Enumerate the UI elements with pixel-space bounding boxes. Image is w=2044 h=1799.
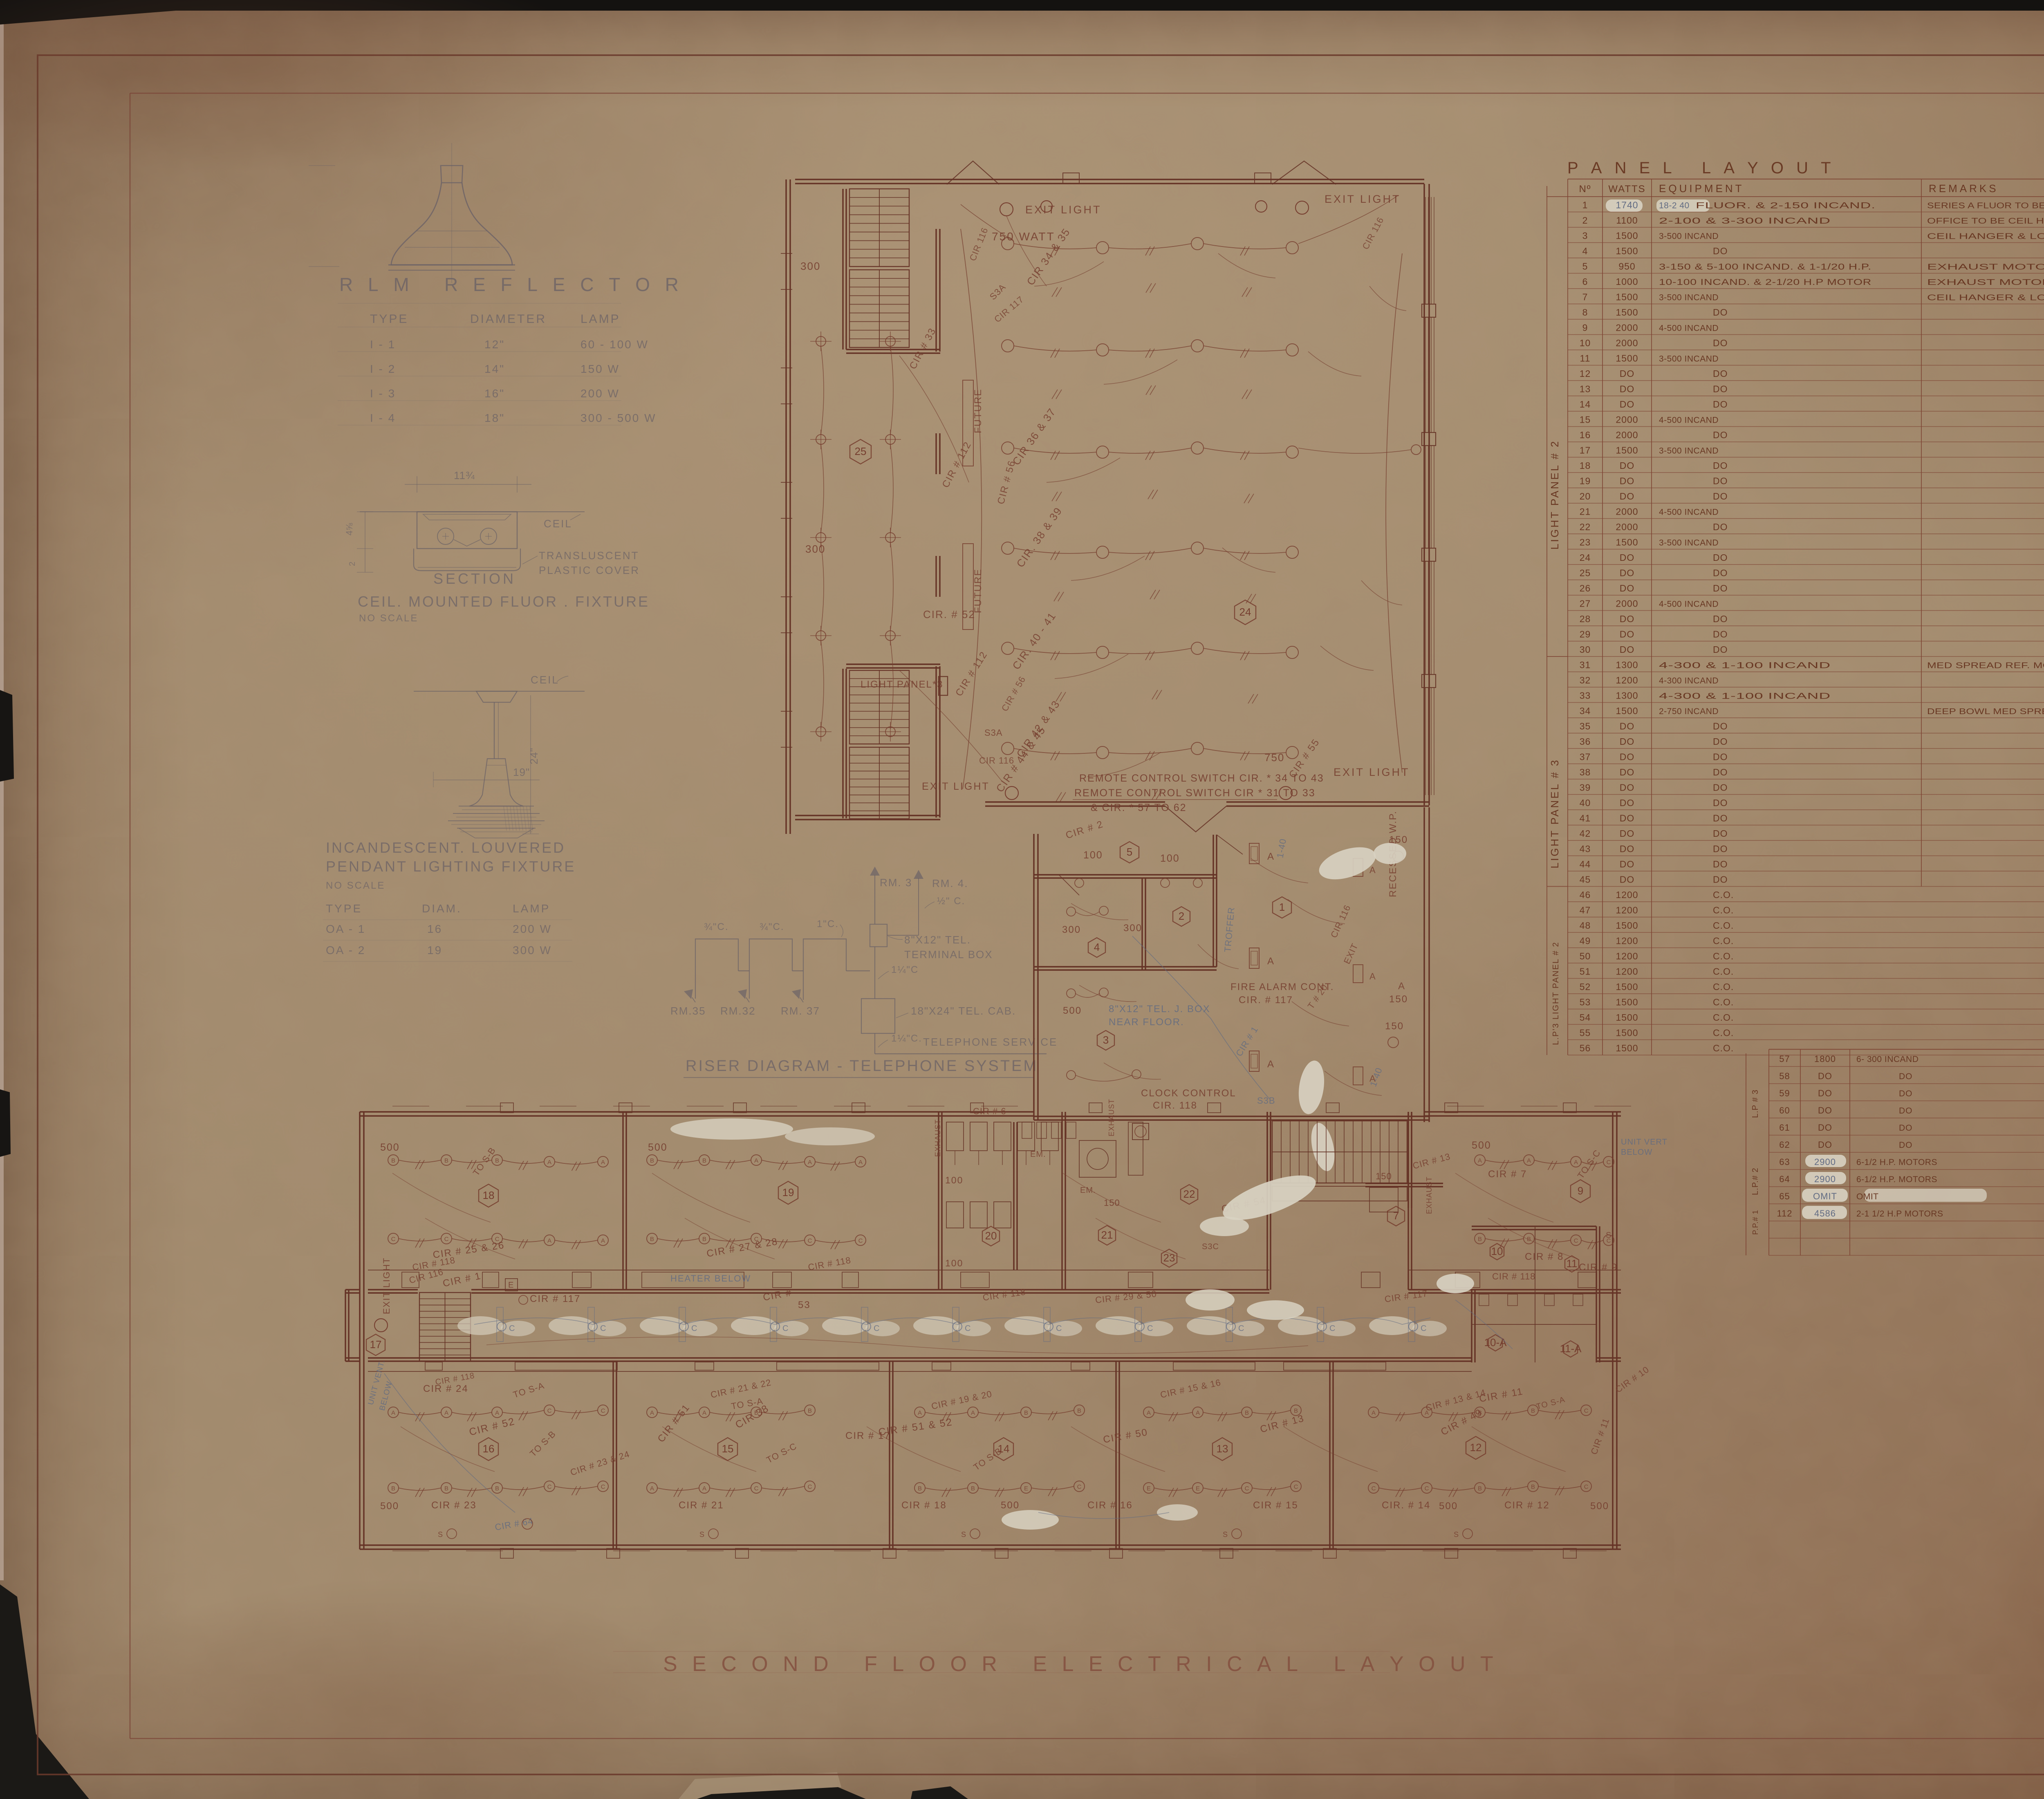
svg-text:A: A (601, 1159, 605, 1166)
svg-text:RM.32: RM.32 (720, 1005, 756, 1017)
svg-text:C.O.: C.O. (1713, 981, 1734, 992)
svg-text:2000: 2000 (1616, 598, 1638, 609)
svg-text:19: 19 (782, 1186, 794, 1199)
svg-text:DO: DO (1713, 828, 1728, 839)
svg-text:NEAR FLOOR.: NEAR FLOOR. (1109, 1017, 1184, 1028)
svg-text:150: 150 (1104, 1198, 1120, 1208)
svg-text:I - 2: I - 2 (370, 363, 396, 375)
svg-text:FUTURE: FUTURE (973, 569, 984, 613)
svg-text:63: 63 (1779, 1157, 1790, 1167)
svg-text:18"X24" TEL. CAB.: 18"X24" TEL. CAB. (911, 1005, 1016, 1017)
svg-text:C: C (965, 1324, 970, 1333)
svg-text:8"X12" TEL.: 8"X12" TEL. (904, 934, 971, 946)
svg-text:REMOTE CONTROL SWITCH CIR * 31: REMOTE CONTROL SWITCH CIR * 31 TO 33 (1074, 787, 1316, 799)
svg-text:P.P.# 1: P.P.# 1 (1751, 1210, 1759, 1234)
svg-text:60: 60 (1779, 1105, 1790, 1116)
svg-text:2: 2 (1179, 910, 1184, 922)
svg-text:22: 22 (1183, 1188, 1195, 1200)
svg-text:1300: 1300 (1616, 690, 1638, 701)
svg-text:59: 59 (1779, 1088, 1790, 1098)
svg-text:200 W: 200 W (580, 387, 620, 400)
svg-text:C: C (1077, 1483, 1082, 1490)
svg-text:150: 150 (1389, 994, 1408, 1005)
svg-text:S: S (1223, 1530, 1228, 1539)
svg-text:CIR 116: CIR 116 (979, 755, 1014, 766)
svg-text:C: C (1421, 1324, 1426, 1333)
svg-text:1500: 1500 (1616, 1043, 1638, 1053)
svg-text:CEIL: CEIL (544, 518, 572, 530)
svg-text:A: A (391, 1409, 395, 1416)
svg-text:½" C.: ½" C. (937, 896, 965, 907)
svg-text:45: 45 (1580, 874, 1591, 885)
svg-text:S: S (438, 1530, 443, 1539)
svg-text:A: A (1369, 865, 1376, 875)
svg-text:13: 13 (1217, 1443, 1228, 1455)
svg-text:DO: DO (1713, 368, 1728, 379)
svg-text:3-500 INCAND: 3-500 INCAND (1659, 446, 1719, 456)
svg-text:C: C (808, 1237, 812, 1244)
svg-text:1"C.: 1"C. (817, 919, 839, 930)
svg-text:4: 4 (1094, 941, 1100, 953)
svg-text:B: B (1077, 1407, 1081, 1414)
svg-text:BELOW: BELOW (1621, 1148, 1652, 1157)
svg-text:DO: DO (1620, 491, 1635, 502)
svg-text:3: 3 (1582, 231, 1588, 241)
svg-text:DO: DO (1620, 798, 1635, 808)
svg-text:500: 500 (1439, 1501, 1458, 1512)
svg-text:DO: DO (1713, 338, 1728, 348)
svg-text:A: A (650, 1409, 654, 1416)
svg-text:DO: DO (1620, 859, 1635, 869)
svg-text:C: C (1245, 1485, 1249, 1492)
svg-text:A: A (1398, 981, 1405, 992)
svg-text:17: 17 (1580, 445, 1591, 456)
svg-text:62: 62 (1779, 1140, 1790, 1150)
svg-text:P A N E L L A Y O U T: P A N E L L A Y O U T (1567, 159, 1835, 177)
svg-text:31: 31 (1580, 660, 1591, 670)
svg-text:OA - 1: OA - 1 (326, 923, 365, 935)
svg-text:C: C (858, 1237, 863, 1244)
svg-text:I - 4: I - 4 (370, 412, 396, 424)
svg-text:C.O.: C.O. (1713, 1043, 1734, 1053)
svg-text:PENDANT LIGHTING FIXTURE: PENDANT LIGHTING FIXTURE (326, 858, 576, 875)
svg-text:DO: DO (1713, 629, 1728, 640)
svg-text:DO: DO (1713, 874, 1728, 885)
svg-text:DO: DO (1713, 752, 1728, 762)
svg-text:21: 21 (1580, 506, 1591, 517)
svg-text:1500: 1500 (1616, 292, 1638, 302)
svg-text:14": 14" (484, 363, 505, 375)
svg-text:A: A (858, 1159, 863, 1166)
svg-text:1200: 1200 (1616, 936, 1638, 946)
svg-text:OMIT: OMIT (1856, 1192, 1879, 1201)
svg-text:1500: 1500 (1616, 231, 1638, 241)
svg-text:CEIL HANGER & LOUVER GRILL: CEIL HANGER & LOUVER GRILL (1927, 232, 2044, 241)
svg-text:57: 57 (1779, 1054, 1790, 1064)
svg-text:1200: 1200 (1616, 675, 1638, 686)
svg-text:S3C: S3C (1202, 1242, 1219, 1251)
svg-text:A: A (1147, 1409, 1151, 1416)
svg-text:C: C (874, 1324, 879, 1333)
svg-text:16": 16" (484, 387, 505, 400)
svg-text:C: C (601, 1407, 605, 1414)
svg-text:8: 8 (1582, 307, 1588, 318)
svg-text:18": 18" (484, 412, 505, 424)
svg-text:DO: DO (1620, 629, 1635, 640)
svg-text:12: 12 (1470, 1441, 1482, 1454)
svg-text:EM.: EM. (1080, 1186, 1096, 1195)
svg-text:6: 6 (1582, 276, 1588, 287)
svg-text:65: 65 (1779, 1191, 1790, 1201)
svg-text:A: A (1196, 1409, 1200, 1416)
svg-text:7: 7 (1582, 292, 1588, 302)
svg-text:CIR # 16: CIR # 16 (1087, 1500, 1133, 1511)
svg-text:41: 41 (1580, 813, 1591, 824)
svg-text:24: 24 (1580, 552, 1591, 563)
svg-text:B: B (495, 1485, 499, 1492)
svg-text:A: A (650, 1485, 654, 1492)
svg-text:DO: DO (1620, 752, 1635, 762)
svg-text:DO: DO (1899, 1106, 1913, 1116)
svg-text:6- 300 INCAND: 6- 300 INCAND (1856, 1055, 1918, 1064)
svg-text:44: 44 (1580, 859, 1591, 869)
svg-text:C: C (1294, 1483, 1298, 1490)
svg-text:3: 3 (1103, 1034, 1109, 1046)
svg-text:26: 26 (1580, 583, 1591, 594)
svg-text:4-500 INCAND: 4-500 INCAND (1659, 416, 1719, 425)
svg-text:2000: 2000 (1616, 323, 1638, 333)
svg-text:L.P # 3: L.P # 3 (1751, 1089, 1760, 1118)
svg-text:12": 12" (484, 338, 505, 351)
svg-text:CIR. 118: CIR. 118 (1153, 1100, 1197, 1111)
svg-text:DO: DO (1713, 460, 1728, 471)
svg-text:300 - 500 W: 300 - 500 W (580, 412, 657, 424)
svg-text:3-150 & 5-100 INCAND. & 1-1/20: 3-150 & 5-100 INCAND. & 1-1/20 H.P. (1659, 262, 1871, 272)
svg-text:47: 47 (1580, 905, 1591, 916)
svg-text:150: 150 (1376, 1171, 1392, 1181)
svg-text:C.O.: C.O. (1713, 966, 1734, 977)
svg-text:1200: 1200 (1616, 966, 1638, 977)
svg-text:16: 16 (1580, 430, 1591, 440)
svg-text:INCANDESCENT. LOUVERED: INCANDESCENT. LOUVERED (326, 839, 565, 856)
svg-text:1500: 1500 (1616, 353, 1638, 364)
svg-text:300: 300 (1062, 924, 1081, 935)
svg-text:11: 11 (1567, 1257, 1578, 1270)
svg-text:DO: DO (1620, 644, 1635, 655)
svg-text:A: A (702, 1485, 706, 1492)
svg-text:C: C (1584, 1407, 1589, 1414)
svg-text:29: 29 (1580, 629, 1591, 640)
svg-text:10-A: 10-A (1484, 1336, 1507, 1349)
svg-text:B: B (391, 1485, 395, 1492)
svg-text:TERMINAL BOX: TERMINAL BOX (904, 948, 993, 961)
svg-text:6-1/2 H.P. MOTORS: 6-1/2 H.P. MOTORS (1856, 1158, 1937, 1167)
svg-text:2000: 2000 (1616, 430, 1638, 440)
svg-text:C.O.: C.O. (1713, 905, 1734, 916)
svg-text:1500: 1500 (1616, 537, 1638, 548)
svg-text:C: C (547, 1407, 552, 1414)
svg-text:1800: 1800 (1814, 1054, 1836, 1064)
svg-text:DO: DO (1713, 568, 1728, 578)
svg-text:28: 28 (1580, 614, 1591, 624)
svg-text:DO: DO (1620, 813, 1635, 824)
svg-text:100: 100 (1160, 853, 1180, 864)
svg-text:55: 55 (1580, 1028, 1591, 1038)
svg-text:C.O.: C.O. (1713, 936, 1734, 946)
svg-text:1¼"C: 1¼"C (891, 964, 919, 975)
svg-text:S E C O N D F L O O R E L: S E C O N D F L O O R E L E C T R I C A … (663, 1652, 1498, 1676)
svg-text:51: 51 (1580, 966, 1591, 977)
svg-text:500: 500 (380, 1501, 399, 1512)
svg-text:C: C (1329, 1324, 1335, 1333)
svg-text:DO: DO (1899, 1140, 1913, 1150)
svg-text:23: 23 (1580, 537, 1591, 548)
svg-text:A: A (754, 1157, 758, 1164)
svg-text:S3A: S3A (984, 728, 1003, 738)
svg-text:1200: 1200 (1616, 951, 1638, 961)
svg-text:C: C (1425, 1485, 1429, 1492)
svg-text:112: 112 (1777, 1208, 1792, 1219)
svg-text:2900: 2900 (1814, 1174, 1836, 1184)
svg-text:42: 42 (1580, 828, 1591, 839)
svg-text:200 W: 200 W (513, 923, 552, 935)
svg-text:DO: DO (1713, 552, 1728, 563)
svg-text:LAMP: LAMP (580, 312, 621, 326)
svg-text:DO: DO (1620, 568, 1635, 578)
svg-text:DO: DO (1713, 399, 1728, 410)
svg-text:C.O.: C.O. (1713, 889, 1734, 900)
svg-text:500: 500 (648, 1142, 668, 1153)
svg-text:4: 4 (1582, 246, 1588, 256)
svg-text:REMOTE CONTROL SWITCH CIR. * 3: REMOTE CONTROL SWITCH CIR. * 34 TO 43 (1079, 773, 1324, 784)
svg-text:1500: 1500 (1616, 920, 1638, 931)
svg-text:19: 19 (427, 944, 442, 957)
svg-text:24: 24 (1239, 606, 1251, 618)
svg-text:DO: DO (1713, 246, 1728, 256)
svg-text:A: A (971, 1409, 975, 1416)
svg-text:DO: DO (1818, 1088, 1832, 1098)
svg-text:C: C (691, 1324, 697, 1333)
svg-text:48: 48 (1580, 920, 1591, 931)
svg-text:4586: 4586 (1814, 1208, 1836, 1219)
svg-text:B: B (444, 1157, 448, 1164)
svg-text:46: 46 (1580, 889, 1591, 900)
svg-text:10-100 INCAND. & 2-1/20 H.P MO: 10-100 INCAND. & 2-1/20 H.P MOTOR (1659, 278, 1871, 287)
svg-text:B: B (1478, 1485, 1482, 1492)
svg-text:B: B (444, 1485, 448, 1492)
svg-text:34: 34 (1580, 706, 1591, 716)
svg-text:RM. 4.: RM. 4. (932, 877, 968, 889)
svg-text:36: 36 (1580, 736, 1591, 747)
svg-text:EQUIPMENT: EQUIPMENT (1659, 182, 1744, 195)
svg-text:DO: DO (1713, 644, 1728, 655)
svg-text:A: A (1369, 971, 1376, 981)
svg-text:1500: 1500 (1616, 706, 1638, 716)
svg-text:¾"C.: ¾"C. (760, 921, 784, 932)
svg-text:300: 300 (1123, 923, 1142, 934)
svg-text:B: B (391, 1157, 395, 1164)
svg-text:1200: 1200 (1616, 889, 1638, 900)
svg-text:2900: 2900 (1814, 1157, 1836, 1167)
svg-text:24": 24" (528, 748, 540, 764)
svg-text:FUTURE: FUTURE (973, 389, 984, 433)
svg-text:REMARKS: REMARKS (1929, 182, 1999, 195)
svg-text:1500: 1500 (1616, 307, 1638, 318)
svg-text:B: B (1531, 1483, 1535, 1490)
svg-text:B: B (1294, 1407, 1298, 1414)
svg-text:B: B (1024, 1409, 1028, 1416)
svg-text:RISER DIAGRAM - TELEPHONE SYS: RISER DIAGRAM - TELEPHONE SYSTEM (686, 1057, 1038, 1075)
svg-text:DO: DO (1818, 1105, 1832, 1116)
svg-text:EXIT LIGHT: EXIT LIGHT (381, 1257, 392, 1314)
svg-text:CEIL: CEIL (531, 674, 559, 686)
svg-text:DO: DO (1620, 874, 1635, 885)
svg-text:EXIT LIGHT: EXIT LIGHT (1334, 766, 1410, 778)
svg-text:C.O.: C.O. (1713, 951, 1734, 961)
svg-text:C: C (1372, 1485, 1376, 1492)
svg-text:EXIT LIGHT: EXIT LIGHT (1325, 193, 1401, 205)
svg-text:CIR # 21: CIR # 21 (679, 1500, 724, 1511)
svg-text:S: S (699, 1530, 704, 1539)
svg-text:DO: DO (1713, 583, 1728, 594)
svg-text:11: 11 (1580, 353, 1591, 364)
svg-text:21: 21 (1101, 1229, 1113, 1241)
svg-text:DO: DO (1620, 476, 1635, 486)
svg-text:UNIT VERT: UNIT VERT (1621, 1138, 1667, 1147)
svg-text:DO: DO (1818, 1140, 1832, 1150)
svg-text:25: 25 (1580, 568, 1591, 578)
svg-text:150 W: 150 W (580, 363, 620, 375)
svg-text:DEEP BOWL MED SPREAD REF. MOUN: DEEP BOWL MED SPREAD REF. MOUNT ON CEIL. (1927, 707, 2044, 716)
svg-text:16: 16 (427, 923, 442, 935)
svg-text:RM.35: RM.35 (670, 1005, 706, 1017)
svg-text:2-1 1/2 H.P MOTORS: 2-1 1/2 H.P MOTORS (1856, 1209, 1943, 1219)
svg-text:I - 3: I - 3 (370, 387, 396, 400)
svg-text:100: 100 (1083, 849, 1103, 861)
svg-text:100: 100 (945, 1175, 963, 1185)
svg-text:11-A: 11-A (1560, 1342, 1582, 1355)
svg-text:EXHAUST MOTORS: EXHAUST MOTORS (1927, 278, 2044, 287)
svg-text:2000: 2000 (1616, 338, 1638, 348)
svg-text:1500: 1500 (1616, 445, 1638, 456)
svg-text:2000: 2000 (1616, 506, 1638, 517)
svg-text:DIAMETER: DIAMETER (470, 312, 547, 326)
svg-text:49: 49 (1580, 936, 1591, 946)
svg-text:5: 5 (1127, 846, 1132, 858)
svg-text:5: 5 (1582, 261, 1588, 272)
svg-text:EXIT LIGHT: EXIT LIGHT (1025, 204, 1102, 216)
svg-text:TYPE: TYPE (326, 902, 362, 915)
svg-text:CIR # 9: CIR # 9 (1579, 1262, 1618, 1273)
svg-text:1500: 1500 (1616, 246, 1638, 256)
svg-text:EXHAUST: EXHAUST (934, 1119, 942, 1157)
svg-text:RM. 3: RM. 3 (880, 876, 912, 889)
svg-text:B: B (918, 1485, 922, 1492)
svg-text:PLASTIC COVER: PLASTIC COVER (539, 564, 640, 576)
svg-text:DO: DO (1620, 767, 1635, 777)
svg-text:4-500 INCAND: 4-500 INCAND (1659, 600, 1719, 609)
svg-text:60 - 100 W: 60 - 100 W (580, 338, 649, 351)
svg-text:DO: DO (1620, 399, 1635, 410)
svg-text:SECTION: SECTION (433, 570, 516, 587)
svg-text:B: B (808, 1407, 812, 1414)
svg-text:500: 500 (380, 1142, 400, 1153)
svg-text:A: A (1267, 1059, 1274, 1070)
svg-text:52: 52 (1580, 981, 1591, 992)
svg-text:1: 1 (1582, 200, 1588, 211)
svg-text:A: A (1574, 1159, 1578, 1166)
svg-text:DO: DO (1713, 721, 1728, 732)
svg-text:C.O.: C.O. (1713, 920, 1734, 931)
svg-text:C.O.: C.O. (1713, 1012, 1734, 1023)
svg-text:CIR # 23: CIR # 23 (431, 1500, 477, 1511)
svg-text:LAMP: LAMP (513, 902, 550, 915)
svg-text:E: E (1196, 1485, 1200, 1492)
svg-text:15: 15 (1580, 414, 1591, 425)
svg-text:C: C (391, 1236, 396, 1243)
svg-text:S3B: S3B (1257, 1096, 1275, 1106)
svg-text:DO: DO (1713, 614, 1728, 624)
svg-text:A: A (444, 1409, 448, 1416)
svg-text:FLUOR. & 2-150 INCAND.: FLUOR. & 2-150 INCAND. (1696, 201, 1876, 211)
svg-text:DO: DO (1899, 1123, 1913, 1133)
svg-text:SERIES A FLUOR TO BE IN TROFFE: SERIES A FLUOR TO BE IN TROFFER & LOUVER… (1927, 202, 2044, 211)
svg-text:DO: DO (1713, 476, 1728, 486)
svg-text:& CIR. * 57 TO 62: & CIR. * 57 TO 62 (1091, 802, 1187, 813)
svg-text:A: A (918, 1409, 922, 1416)
svg-text:950: 950 (1618, 261, 1635, 272)
svg-text:A: A (547, 1237, 551, 1244)
svg-text:CIR. # 117: CIR. # 117 (1239, 995, 1293, 1006)
svg-text:15: 15 (722, 1443, 734, 1455)
svg-text:19: 19 (1580, 476, 1591, 486)
svg-text:R L M R E F L E C T O R: R L M R E F L E C T O R (339, 274, 684, 295)
svg-text:B: B (702, 1157, 706, 1164)
svg-text:DO: DO (1620, 736, 1635, 747)
svg-text:20: 20 (985, 1230, 997, 1242)
svg-text:9: 9 (1582, 323, 1588, 333)
svg-text:DO: DO (1713, 307, 1728, 318)
svg-text:18: 18 (1580, 460, 1591, 471)
svg-text:2: 2 (348, 562, 357, 566)
svg-text:C: C (444, 1236, 449, 1243)
svg-text:56: 56 (1580, 1043, 1591, 1053)
svg-text:25: 25 (855, 445, 867, 457)
svg-text:LIGHT PANEL # 3: LIGHT PANEL # 3 (1549, 758, 1561, 868)
svg-text:750 WATT: 750 WATT (992, 230, 1055, 243)
svg-text:CLOCK CONTROL: CLOCK CONTROL (1141, 1088, 1236, 1099)
svg-text:E: E (1147, 1485, 1151, 1492)
svg-text:OFFICE TO BE CEIL HANGER & LOU: OFFICE TO BE CEIL HANGER & LOUVER-GRILL (1927, 217, 2044, 226)
svg-text:DO: DO (1620, 844, 1635, 854)
svg-text:S: S (1454, 1530, 1459, 1539)
svg-text:150: 150 (1385, 1021, 1404, 1032)
svg-text:¾"C.: ¾"C. (704, 921, 729, 932)
svg-text:2000: 2000 (1616, 414, 1638, 425)
svg-text:32: 32 (1580, 675, 1591, 686)
svg-text:DO: DO (1818, 1071, 1832, 1081)
svg-text:18-2 40: 18-2 40 (1659, 201, 1690, 211)
svg-text:39: 39 (1580, 782, 1591, 793)
svg-text:CIR # 8: CIR # 8 (1525, 1251, 1564, 1262)
svg-text:DO: DO (1899, 1089, 1913, 1098)
svg-text:300: 300 (800, 260, 820, 272)
svg-text:DO: DO (1713, 384, 1728, 394)
svg-text:C: C (601, 1483, 605, 1490)
svg-text:B: B (1478, 1236, 1482, 1243)
svg-text:20: 20 (1580, 491, 1591, 502)
svg-text:19": 19" (513, 766, 530, 778)
